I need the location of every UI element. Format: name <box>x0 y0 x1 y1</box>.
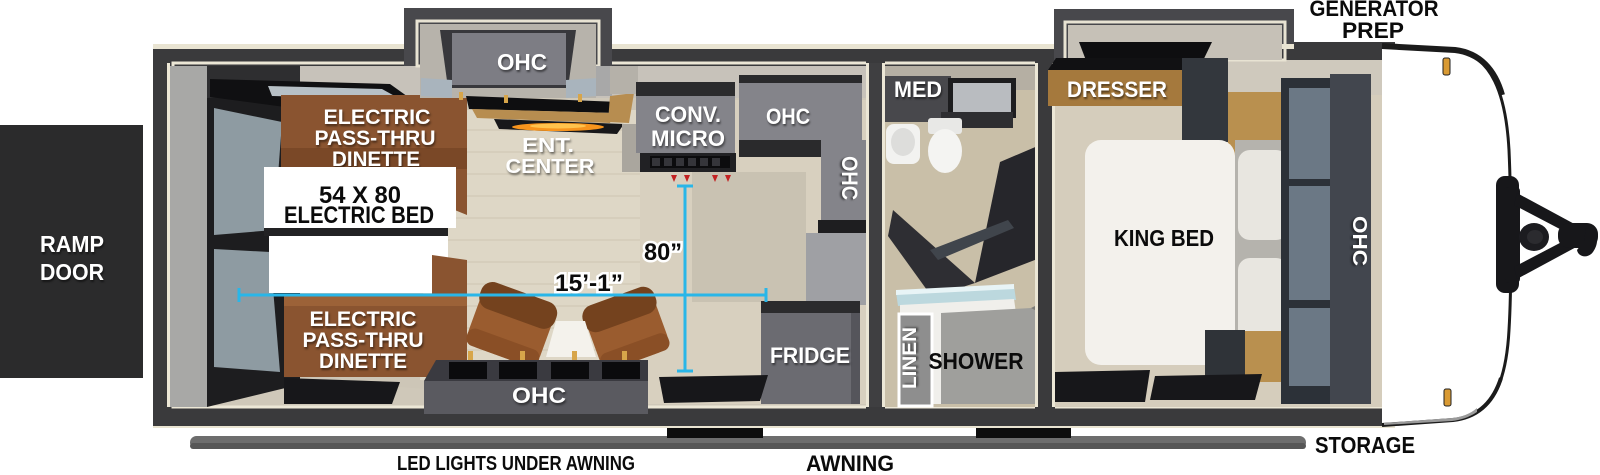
svg-text:OHC: OHC <box>1348 216 1370 266</box>
svg-text:MICRO: MICRO <box>651 126 725 151</box>
svg-text:ELECTRIC: ELECTRIC <box>324 106 431 129</box>
svg-text:DRESSER: DRESSER <box>1067 77 1167 102</box>
svg-text:15’-1”: 15’-1” <box>555 270 623 297</box>
svg-text:PASS-THRU: PASS-THRU <box>303 329 424 352</box>
svg-text:ELECTRIC BED: ELECTRIC BED <box>284 202 434 229</box>
svg-text:FRIDGE: FRIDGE <box>770 343 850 368</box>
svg-text:PREP: PREP <box>1342 18 1404 43</box>
svg-text:CENTER: CENTER <box>506 156 596 178</box>
svg-text:STORAGE: STORAGE <box>1315 432 1415 458</box>
svg-text:PASS-THRU: PASS-THRU <box>315 127 436 150</box>
svg-text:MED: MED <box>894 77 942 102</box>
svg-text:80”: 80” <box>644 239 682 266</box>
svg-text:ENT.: ENT. <box>522 135 574 157</box>
svg-text:SHOWER: SHOWER <box>929 348 1024 374</box>
svg-text:DOOR: DOOR <box>40 259 104 285</box>
svg-text:ELECTRIC: ELECTRIC <box>310 308 417 331</box>
svg-text:OHC: OHC <box>766 104 810 129</box>
svg-text:KING BED: KING BED <box>1114 225 1214 251</box>
svg-text:LED LIGHTS UNDER AWNING: LED LIGHTS UNDER AWNING <box>397 453 635 475</box>
svg-text:CONV.: CONV. <box>655 102 721 127</box>
svg-text:OHC: OHC <box>497 49 547 75</box>
svg-text:OHC: OHC <box>512 383 566 408</box>
svg-text:LINEN: LINEN <box>900 327 921 389</box>
svg-text:DINETTE: DINETTE <box>319 350 407 373</box>
svg-text:OHC: OHC <box>837 156 862 200</box>
svg-text:AWNING: AWNING <box>806 451 894 475</box>
svg-text:RAMP: RAMP <box>40 231 104 257</box>
